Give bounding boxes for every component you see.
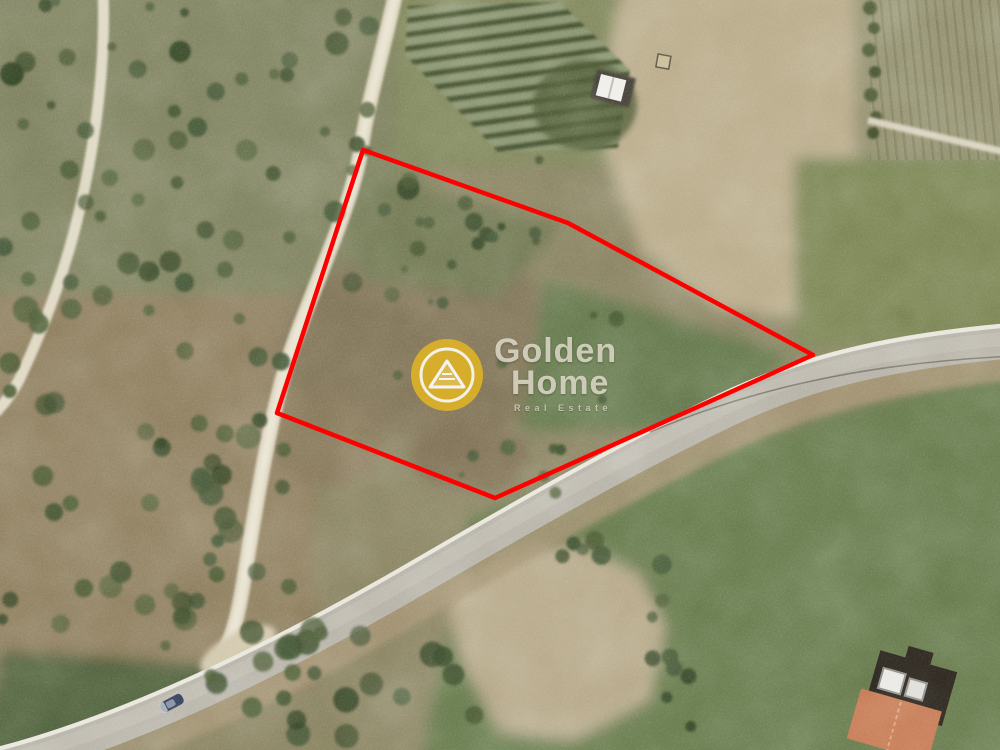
satellite-map-view: Golden Home Real Estate [0,0,1000,750]
grain-texture [0,0,1000,750]
satellite-basemap [0,0,1000,750]
